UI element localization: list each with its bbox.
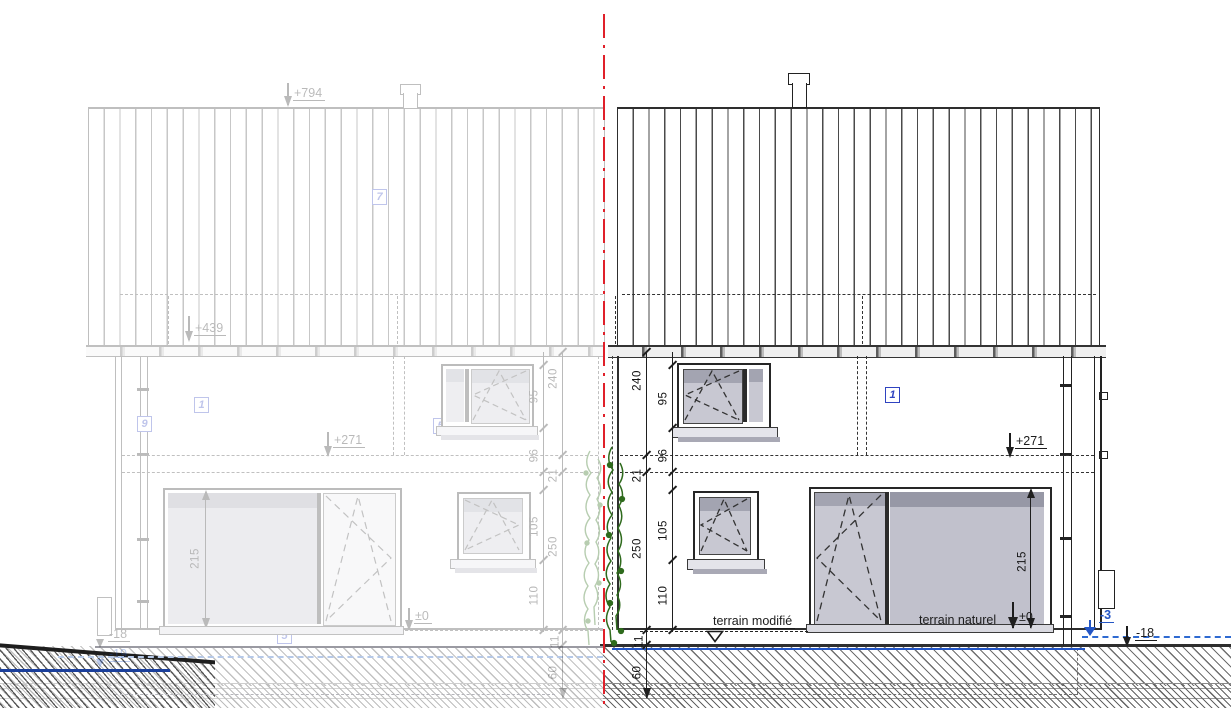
left-lower-window-opening-icon [463, 498, 521, 552]
right-door-divider [885, 492, 889, 624]
marker-arrow [1008, 617, 1018, 629]
dim-arrow-up [202, 490, 210, 500]
dim-11-right: 11 [633, 625, 646, 659]
right-chimney [792, 83, 807, 108]
right-downspout-clamp [1060, 537, 1072, 540]
marker-arrow [324, 446, 332, 457]
right-upper-window-mullion [743, 369, 747, 422]
right-dim-chain-inner [672, 352, 673, 632]
terrain-open-triangle-icon [706, 630, 724, 643]
dim-105-right: 105 [657, 514, 670, 548]
level-attic-label: +439 [194, 321, 226, 336]
terrain-natural-label: terrain naturel [919, 613, 996, 627]
left-zero-dash [385, 630, 603, 631]
level-minus19-label: -19 [108, 647, 130, 662]
left-door-divider [317, 493, 321, 624]
right-hidden-wall-b [866, 356, 867, 455]
dim-60-right: 60 [631, 656, 644, 690]
elevation-drawing: +794 +439 +271 ±0 -18 -19 7 1 [0, 0, 1231, 708]
terrain-modified-label: terrain modifié [712, 614, 795, 629]
minus3-arrow-icon [1083, 620, 1097, 636]
dim-240-right: 240 [631, 364, 644, 398]
left-door-height-label: 215 [189, 542, 202, 576]
dim-250-right: 250 [631, 532, 644, 566]
left-roof [88, 107, 605, 346]
tag-downspout: 9 [137, 416, 152, 432]
left-upper-window-fixed [446, 369, 464, 422]
left-downspout [140, 356, 148, 630]
left-door-height-dimline [205, 492, 206, 628]
tag-wall-left: 1 [194, 397, 209, 413]
dim-arrow-down [643, 688, 651, 699]
level-minus3-label: -3 [1099, 608, 1114, 623]
right-roof-attic-line [622, 294, 1096, 295]
left-upper-window-sill-shadow [441, 435, 539, 440]
left-upper-window-mullion [465, 369, 469, 422]
level-marker-minus3: -3 [1099, 608, 1114, 622]
right-hidden-wall-a [857, 356, 858, 455]
terrain-modified-dashline [640, 631, 808, 632]
level-zero-label: ±0 [1018, 610, 1036, 625]
left-hidden-wall-b [404, 356, 405, 455]
right-level-line-455 [620, 455, 1094, 456]
dim-21-left: 21 [547, 459, 560, 493]
level-minus18-label: -18 [1135, 626, 1157, 641]
marker-arrow [96, 639, 104, 648]
dim-arrow-down [559, 688, 567, 699]
right-upper-window-opening-icon [683, 369, 741, 422]
level-upper-floor-label: +271 [333, 433, 365, 448]
left-roof-attic-line [120, 294, 603, 295]
left-wall-edge [115, 356, 122, 630]
climbing-vine [576, 443, 628, 650]
left-dim-chain-inner [543, 352, 544, 632]
left-lower-window-sill-shadow [455, 568, 537, 573]
right-door-height-dimline [1030, 490, 1031, 628]
dim-110-right: 110 [657, 579, 670, 613]
dim-250-left: 250 [547, 530, 560, 564]
marker-arrow [96, 659, 104, 668]
right-lower-window-opening-icon [699, 497, 749, 553]
right-wall-hook [1099, 451, 1108, 459]
right-roof [617, 107, 1100, 346]
right-roof-hidden-edge-2 [862, 296, 863, 344]
dim-96-left: 96 [528, 439, 541, 473]
left-roof-hidden-edge-2 [397, 296, 398, 344]
right-upper-window-sill-shadow [678, 437, 780, 442]
dim-95-right: 95 [657, 382, 670, 416]
dim-240-left: 240 [547, 362, 560, 396]
dim-60-left: 60 [547, 656, 560, 690]
left-door-opening-icon [323, 493, 394, 624]
left-roof-hidden-edge-1 [168, 296, 169, 344]
terrain-modified-group: terrain modifié [712, 614, 795, 628]
marker-arrow [284, 96, 292, 107]
dim-105-left: 105 [528, 510, 541, 544]
right-wall-hook [1099, 392, 1108, 400]
marker-stem [1126, 626, 1128, 640]
left-downspout-clamp [137, 388, 149, 391]
right-door-height-label: 215 [1016, 545, 1029, 579]
dim-arrow-up [1027, 488, 1035, 498]
tag-roof: 7 [372, 189, 387, 205]
marker-arrow [1006, 447, 1014, 458]
level-upper-floor-label: +271 [1015, 434, 1047, 449]
left-door-threshold [159, 626, 404, 635]
level-zero-label: ±0 [414, 609, 432, 624]
right-roof-hidden-edge-1 [615, 296, 616, 344]
dim-96-right: 96 [657, 439, 670, 473]
right-downspout-clamp [1060, 384, 1072, 387]
level-ridge-label: +794 [293, 86, 325, 101]
left-downspout-clamp [137, 538, 149, 541]
dim-95-left: 95 [528, 380, 541, 414]
left-downspout-clamp [137, 600, 149, 603]
right-upper-window-fixed [749, 369, 763, 422]
right-downspout-clamp [1060, 615, 1072, 618]
tag-wall-right: 1 [885, 387, 900, 403]
left-chimney [403, 93, 418, 109]
level-minus18-label: -18 [108, 627, 130, 642]
left-upper-window-opening-icon [471, 369, 528, 422]
terrain-natural-label-wrap: terrain naturel [919, 613, 996, 627]
right-downspout [1063, 356, 1072, 646]
dim-21-right: 21 [631, 459, 644, 493]
right-door-opening-icon [814, 492, 884, 624]
right-wall-box [1098, 570, 1115, 609]
right-lower-window-sill-shadow [693, 569, 767, 574]
left-eave [86, 345, 605, 357]
marker-arrow [185, 331, 193, 342]
right-level-line-472 [620, 472, 1094, 473]
left-hidden-wall-a [393, 356, 394, 455]
dim-110-left: 110 [528, 579, 541, 613]
dim-11-left: 11 [549, 625, 562, 659]
